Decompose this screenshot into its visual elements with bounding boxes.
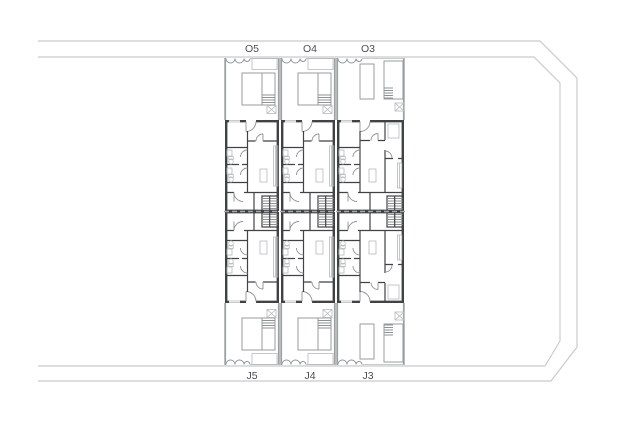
unit-J4-plan: [281, 212, 336, 365]
unit-label-O3: O3: [361, 43, 375, 55]
unit-O4-plan: [281, 58, 336, 211]
unit-J5-plan: [225, 212, 280, 365]
unit-O3-plan: [337, 58, 405, 211]
unit-J3-plan: [337, 212, 405, 365]
unit-label-O4: O4: [303, 43, 317, 55]
unit-label-J4: J4: [304, 370, 315, 382]
unit-O5-plan: [225, 58, 280, 211]
site-plan-drawing: O5 O4 O3 J5 J4 J3: [0, 0, 630, 430]
unit-label-J3: J3: [362, 370, 373, 382]
unit-label-J5: J5: [246, 370, 257, 382]
unit-label-O5: O5: [245, 43, 259, 55]
plan-page: O5 O4 O3 J5 J4 J3: [0, 0, 630, 430]
